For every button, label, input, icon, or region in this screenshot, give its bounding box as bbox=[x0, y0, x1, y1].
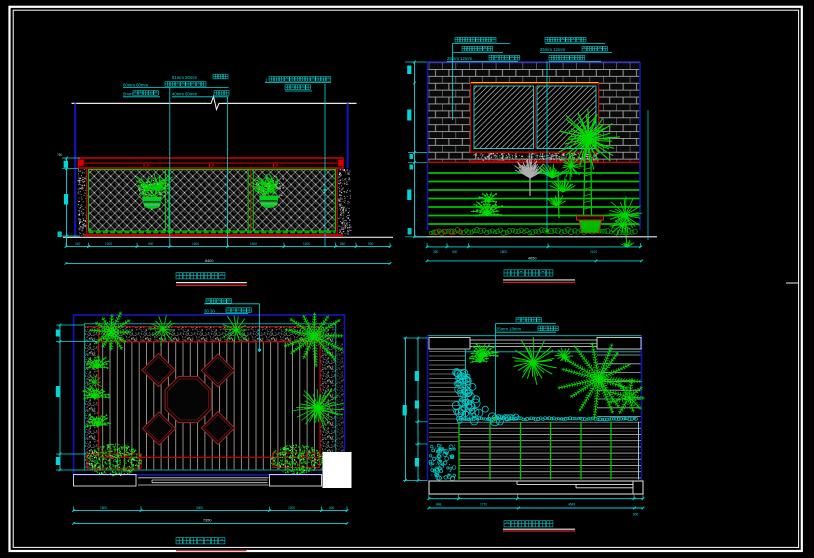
svg-text:1400: 1400 bbox=[303, 242, 310, 246]
svg-text:1500: 1500 bbox=[100, 506, 107, 510]
svg-text:25mm 18mm: 25mm 18mm bbox=[496, 327, 521, 332]
svg-text:5mm: 5mm bbox=[123, 91, 133, 96]
svg-text:25mm 12mm: 25mm 12mm bbox=[540, 47, 565, 52]
svg-text:4650: 4650 bbox=[528, 256, 536, 260]
svg-text:81mm 30mm: 81mm 30mm bbox=[172, 75, 197, 80]
svg-text:2100: 2100 bbox=[590, 250, 597, 254]
svg-text:7350: 7350 bbox=[203, 519, 211, 523]
svg-text:500: 500 bbox=[452, 250, 458, 254]
svg-text:8400: 8400 bbox=[205, 259, 213, 263]
svg-text:40mm 60mm: 40mm 60mm bbox=[172, 91, 197, 96]
svg-text:560: 560 bbox=[340, 242, 346, 246]
svg-text:240: 240 bbox=[75, 242, 81, 246]
svg-text:1500: 1500 bbox=[250, 242, 257, 246]
svg-text:30 30: 30 30 bbox=[204, 308, 215, 313]
svg-text:25mm 12mm: 25mm 12mm bbox=[447, 56, 472, 61]
svg-text:1770: 1770 bbox=[480, 502, 487, 506]
svg-text:4649: 4649 bbox=[568, 502, 575, 506]
svg-text:1800: 1800 bbox=[500, 250, 507, 254]
svg-text:1200: 1200 bbox=[288, 506, 295, 510]
svg-text:900: 900 bbox=[148, 242, 154, 246]
svg-text:1500: 1500 bbox=[192, 242, 199, 246]
svg-text:600: 600 bbox=[329, 506, 335, 510]
svg-text:60mm 60mm: 60mm 60mm bbox=[123, 82, 148, 87]
svg-text:3000: 3000 bbox=[196, 506, 203, 510]
svg-text:848: 848 bbox=[436, 502, 442, 506]
svg-text:1200: 1200 bbox=[105, 242, 112, 246]
svg-text:750: 750 bbox=[57, 153, 63, 157]
svg-text:900: 900 bbox=[368, 242, 374, 246]
svg-text:600: 600 bbox=[633, 513, 639, 517]
svg-text:350: 350 bbox=[433, 250, 439, 254]
